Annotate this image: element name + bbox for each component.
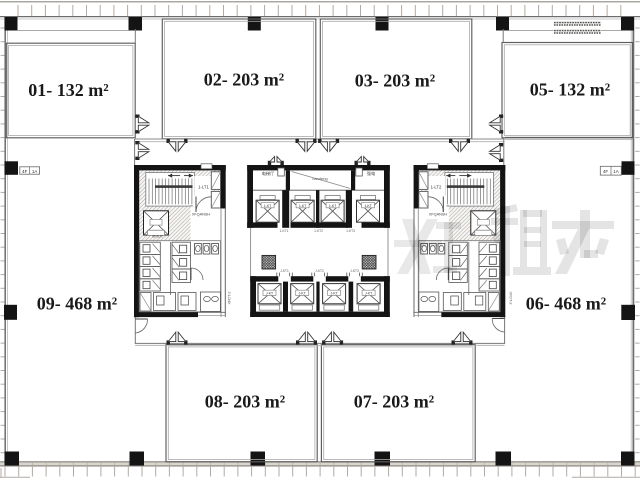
svg-text:J-KT: J-KT — [331, 291, 338, 295]
svg-text:电梯厅: 电梯厅 — [262, 170, 275, 177]
svg-text:XFQANSH: XFQANSH — [429, 213, 448, 217]
svg-text:1-KT1: 1-KT1 — [280, 229, 289, 233]
svg-text:1-LT2: 1-LT2 — [431, 185, 442, 190]
svg-text:03- 203 m²: 03- 203 m² — [355, 71, 435, 91]
svg-text:05- 132 m²: 05- 132 m² — [530, 80, 610, 100]
svg-text:1-KT: 1-KT — [299, 204, 306, 208]
svg-text:1A: 1A — [613, 169, 620, 174]
svg-text:1-KT: 1-KT — [364, 204, 371, 208]
svg-text:09- 468 m²: 09- 468 m² — [37, 294, 117, 314]
svg-text:02- 203 m²: 02- 203 m² — [204, 70, 284, 90]
svg-text:J-KT: J-KT — [299, 291, 306, 295]
svg-text:4F: 4F — [22, 169, 27, 174]
svg-text:XFQANSH: XFQANSH — [192, 213, 211, 217]
svg-text:1A: 1A — [32, 169, 37, 174]
svg-text:XFDT-2: XFDT-2 — [509, 291, 513, 304]
svg-text:1-KT2: 1-KT2 — [314, 229, 323, 233]
svg-text:4F: 4F — [603, 169, 609, 174]
svg-text:1-KT: 1-KT — [264, 204, 271, 208]
svg-text:XFDJT: XFDJT — [152, 235, 164, 239]
svg-text:XFDT-2: XFDT-2 — [228, 291, 232, 304]
svg-text:01- 132 m²: 01- 132 m² — [28, 80, 108, 100]
svg-text:J-KT: J-KT — [365, 291, 372, 295]
svg-text:J-KT: J-KT — [266, 291, 273, 295]
svg-text:06- 468 m²: 06- 468 m² — [526, 294, 606, 314]
svg-text:J-KT3: J-KT3 — [350, 269, 359, 273]
svg-text:candeng: candeng — [312, 176, 327, 181]
svg-text:1-LT1: 1-LT1 — [198, 185, 209, 190]
svg-text:08- 203 m²: 08- 203 m² — [205, 392, 285, 412]
svg-text:J-KT1: J-KT1 — [280, 269, 289, 273]
svg-text:1-KT3: 1-KT3 — [346, 229, 355, 233]
svg-text:07- 203 m²: 07- 203 m² — [354, 392, 434, 412]
svg-text:强电: 强电 — [367, 170, 376, 177]
svg-text:J-KT2: J-KT2 — [315, 269, 324, 273]
svg-text:1-KT: 1-KT — [329, 204, 336, 208]
